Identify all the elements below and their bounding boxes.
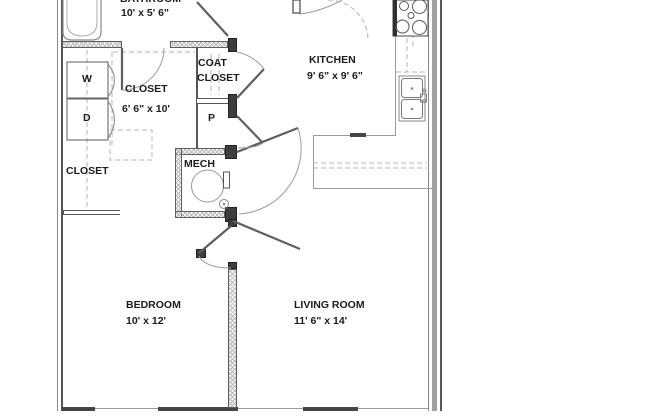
room-label-pantry: P [208, 112, 215, 124]
coat-closet-door-leaf [237, 69, 264, 98]
stove-icon [393, 0, 428, 36]
room-dims-bathroom: 10' x 5' 6" [121, 7, 169, 19]
pantry-door-leaf [237, 116, 263, 143]
room-dims-hall-closet: 6' 6" x 10' [122, 103, 170, 115]
entry-door-leaf [293, 0, 300, 13]
floor-plan: BATHROOM 10' x 5' 6" KITCHEN 9' 6" x 9' … [0, 0, 652, 416]
hall-door-leaf-2 [233, 221, 300, 249]
room-label-coat-closet-line1: COAT [198, 57, 227, 69]
door-leaves [122, 2, 300, 253]
bathroom-door-leaf [197, 2, 228, 36]
room-label-kitchen: KITCHEN [309, 54, 356, 66]
room-dims-living-room: 11' 6" x 14' [294, 315, 347, 327]
sink-icon [399, 76, 427, 121]
bathtub-icon [63, 0, 101, 40]
bedroom-door-leaf [199, 226, 231, 253]
room-label-mech: MECH [184, 158, 215, 170]
door-swing-arcs [122, 0, 368, 268]
room-label-bathroom: BATHROOM [120, 0, 181, 5]
hall-door-leaf [237, 128, 298, 152]
appliance-label-washer: W [82, 73, 92, 85]
room-label-bedroom: BEDROOM [126, 299, 181, 311]
room-label-bedroom-closet: CLOSET [66, 165, 109, 177]
room-label-living-room: LIVING ROOM [294, 299, 365, 311]
water-heater-icon [192, 170, 230, 209]
appliance-label-dryer: D [83, 112, 91, 124]
room-dims-kitchen: 9' 6" x 9' 6" [307, 70, 363, 82]
room-dims-bedroom: 10' x 12' [126, 315, 166, 327]
room-label-hall-closet: CLOSET [125, 83, 168, 95]
room-label-coat-closet-line2: CLOSET [197, 72, 240, 84]
